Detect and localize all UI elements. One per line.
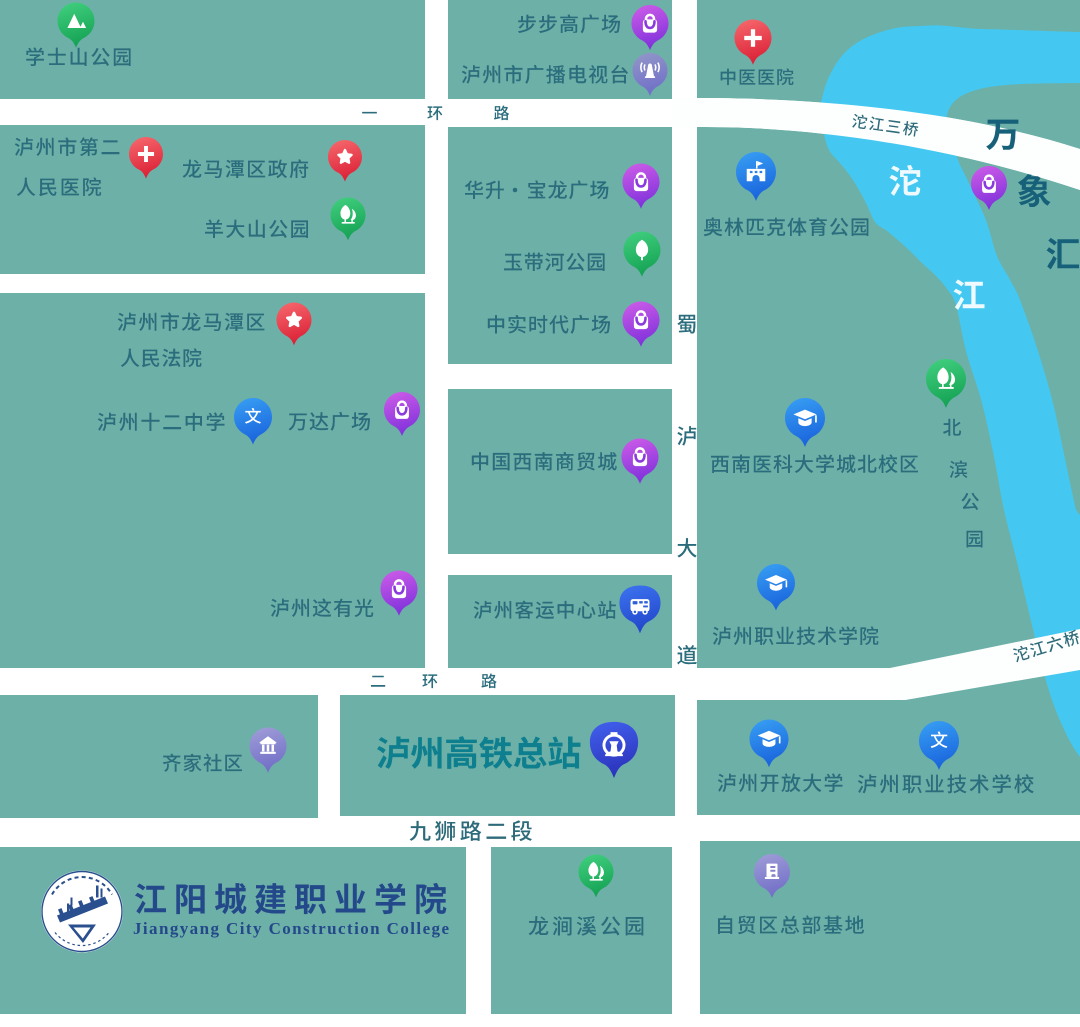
svg-text:Jiangyang City Construction Co: Jiangyang City Construction College — [133, 919, 449, 938]
